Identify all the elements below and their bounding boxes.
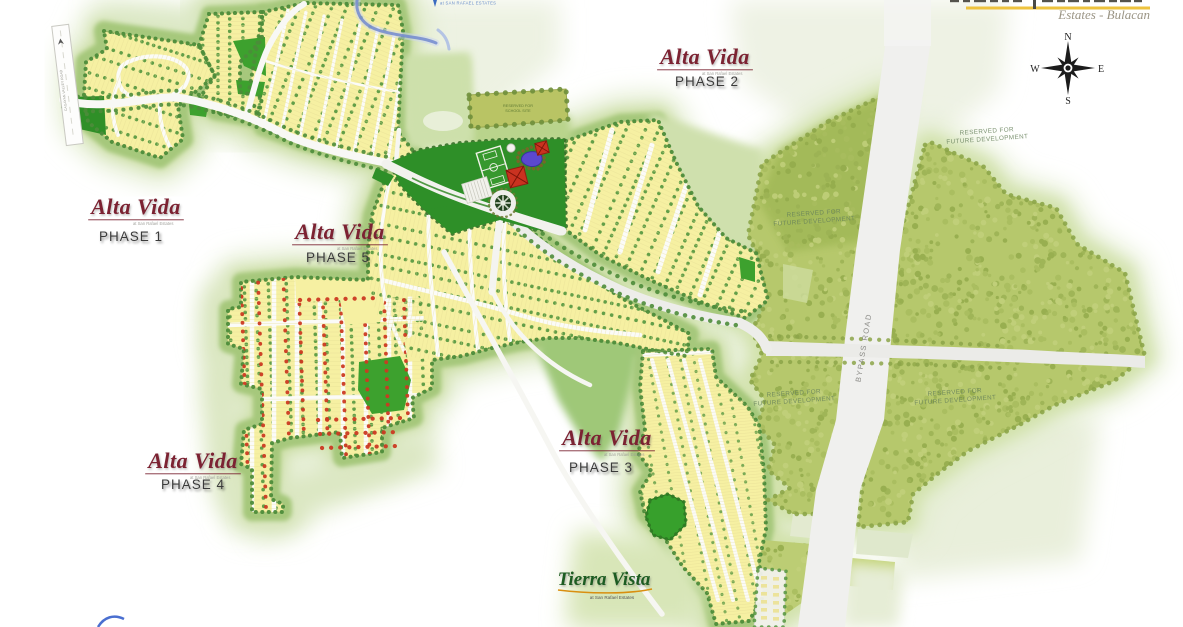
svg-text:W: W: [1030, 64, 1040, 75]
svg-text:RESERVED FOR: RESERVED FOR: [503, 104, 533, 108]
svg-text:Alta Vida: Alta Vida: [89, 194, 180, 219]
svg-text:Alta Vida: Alta Vida: [146, 448, 237, 473]
svg-text:PHASE 3: PHASE 3: [569, 460, 633, 475]
svg-text:S: S: [1065, 96, 1071, 107]
svg-text:at San Rafael Estates: at San Rafael Estates: [133, 221, 174, 226]
svg-text:PHASE 2: PHASE 2: [675, 74, 739, 89]
svg-text:Alta Vida: Alta Vida: [658, 44, 749, 69]
svg-text:PHASE 4: PHASE 4: [161, 477, 225, 492]
svg-text:PHASE 5: PHASE 5: [306, 250, 370, 265]
svg-text:at San Rafael Estates: at San Rafael Estates: [604, 452, 645, 457]
svg-text:SCHOOL SITE: SCHOOL SITE: [505, 109, 531, 113]
svg-text:E: E: [1098, 64, 1104, 75]
svg-text:Alta Vida: Alta Vida: [560, 425, 651, 450]
svg-text:PHASE 1: PHASE 1: [99, 229, 163, 244]
svg-text:Tierra Vista: Tierra Vista: [558, 569, 651, 590]
svg-text:Estates - Bulacan: Estates - Bulacan: [1057, 7, 1150, 22]
svg-text:N: N: [1064, 32, 1071, 43]
svg-text:at SAN RAFAEL ESTATES: at SAN RAFAEL ESTATES: [440, 1, 496, 6]
svg-text:at San Rafael Estates: at San Rafael Estates: [590, 595, 635, 600]
svg-text:Alta Vida: Alta Vida: [293, 219, 384, 244]
